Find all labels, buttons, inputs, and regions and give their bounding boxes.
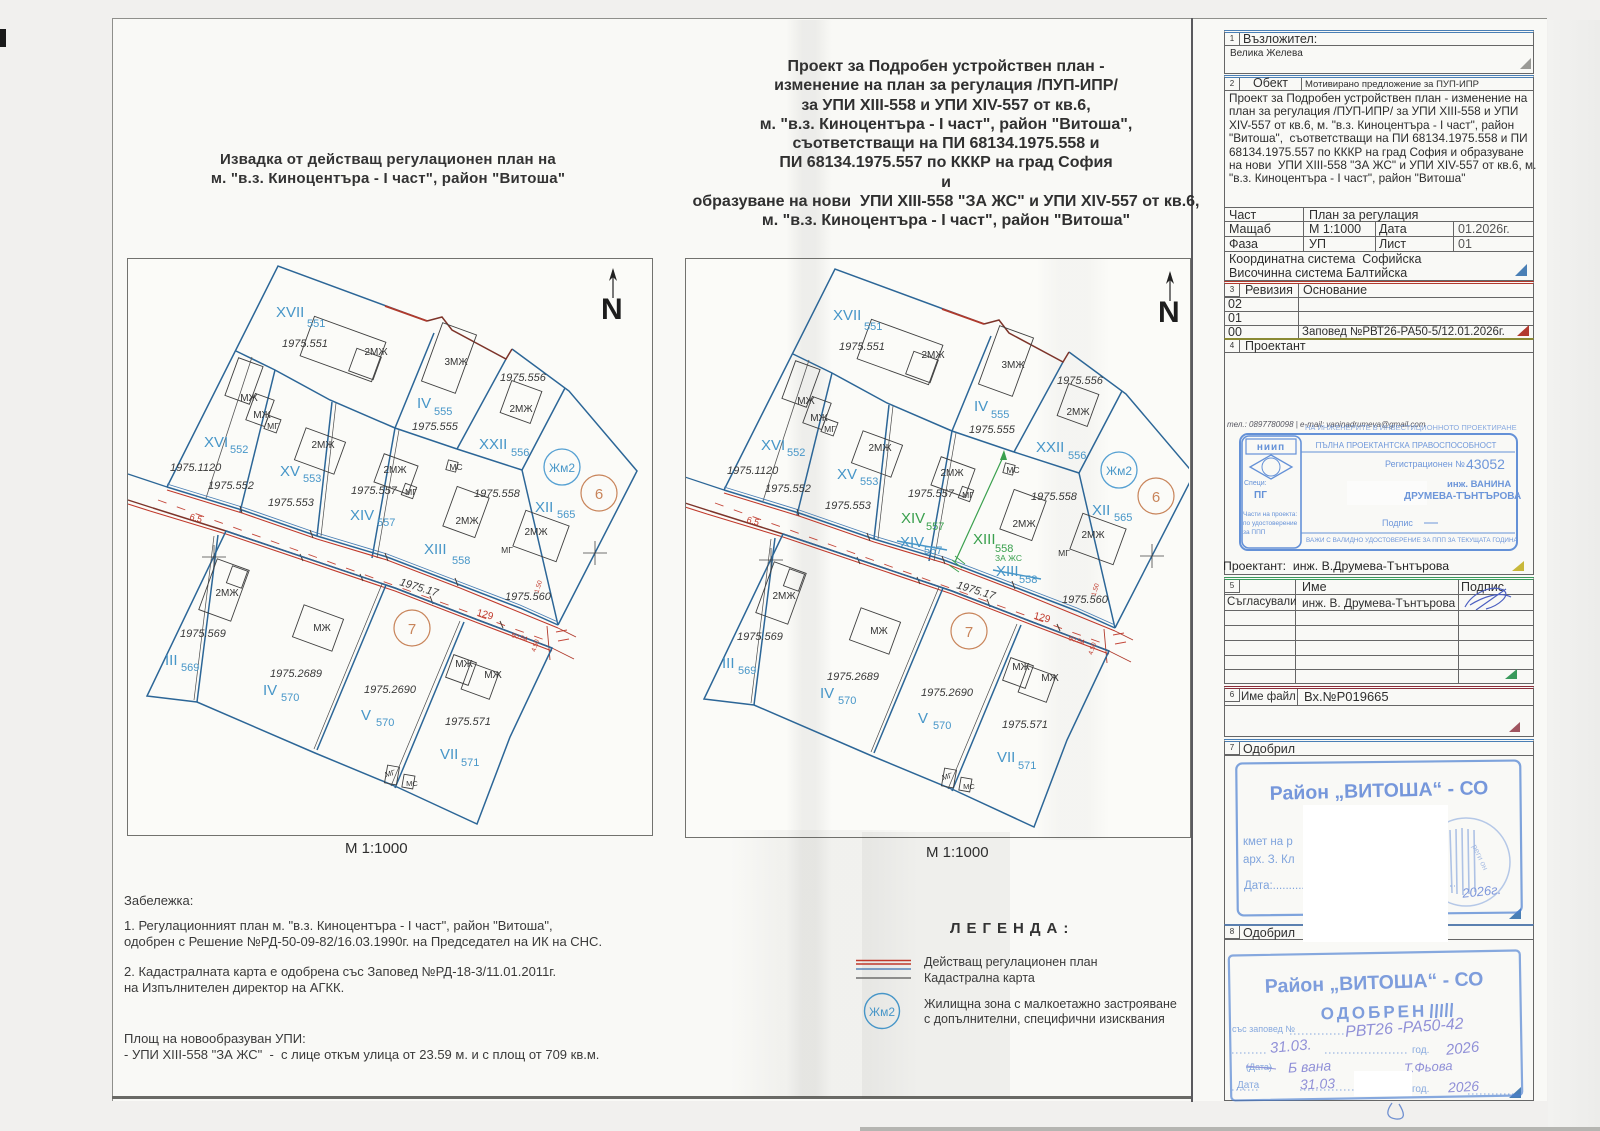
svg-text:за ППП: за ППП (1243, 529, 1266, 536)
svg-text:инж. ВАНИНА: инж. ВАНИНА (1447, 479, 1511, 490)
svg-text:XIII: XIII (973, 531, 996, 548)
svg-text:кмет на р: кмет на р (1243, 836, 1293, 848)
svg-text:Части на проекта:: Части на проекта: (1243, 511, 1297, 518)
svg-text:ВАЖИ С ВАЛИДНО УДОСТОВЕРЕНИЕ З: ВАЖИ С ВАЛИДНО УДОСТОВЕРЕНИЕ ЗА ППП ЗА Т… (1306, 537, 1518, 544)
svg-text:2026: 2026 (1447, 1078, 1480, 1096)
svg-text:реги он: реги он (1470, 843, 1490, 872)
svg-text:по удостоверение: по удостоверение (1243, 520, 1298, 527)
svg-text:ниип: ниип (1257, 442, 1285, 453)
svg-text:557: 557 (377, 517, 395, 529)
svg-text:2026г.: 2026г. (1461, 882, 1502, 901)
svg-text:Регистрационен №: Регистрационен № (1385, 459, 1465, 469)
svg-text:XIII: XIII (424, 541, 447, 558)
svg-text:със заповед №: със заповед № (1232, 1024, 1295, 1034)
svg-text:Дата: Дата (1237, 1080, 1260, 1091)
svg-text:ЗА ЖС: ЗА ЖС (995, 553, 1022, 563)
svg-text:Б вана: Б вана (1288, 1057, 1332, 1075)
svg-text:Район „ВИТОША“ - СО: Район „ВИТОША“ - СО (1269, 777, 1488, 805)
svg-text:год.: год. (1412, 1045, 1429, 1056)
svg-text:557: 557 (926, 521, 944, 533)
svg-text:год.: год. (1412, 1084, 1429, 1095)
svg-text:ПГ: ПГ (1254, 490, 1267, 501)
svg-text:43052: 43052 (1466, 456, 1505, 472)
svg-text:арх. З. Кл: арх. З. Кл (1243, 854, 1295, 866)
svg-text:2026: 2026 (1444, 1038, 1481, 1059)
svg-text:558: 558 (452, 555, 470, 567)
svg-text:31.03: 31.03 (1300, 1075, 1336, 1092)
svg-text:НА ИНЖЕНЕРИТЕ В ИНВЕСТИЦИОННОТ: НА ИНЖЕНЕРИТЕ В ИНВЕСТИЦИОННОТО ПРОЕКТИР… (1305, 423, 1517, 432)
svg-text:ПЪЛНА ПРОЕКТАНТСКА ПРАВОСПОСОБ: ПЪЛНА ПРОЕКТАНТСКА ПРАВОСПОСОБНОСТ (1316, 441, 1497, 450)
svg-text:Подпис: Подпис (1382, 518, 1413, 528)
svg-text:XIV: XIV (901, 510, 925, 527)
svg-text:Район „ВИТОША“ - СО: Район „ВИТОША“ - СО (1264, 968, 1483, 998)
svg-text:ДРУМЕВА-ТЪНТЪРОВА: ДРУМЕВА-ТЪНТЪРОВА (1404, 491, 1521, 502)
svg-text:Специ:: Специ: (1244, 480, 1267, 487)
svg-text:XIV: XIV (350, 507, 374, 524)
svg-text:Дата:............: Дата:............ (1244, 880, 1311, 892)
svg-text:Жм2: Жм2 (869, 1005, 895, 1019)
svg-text:31.03.: 31.03. (1269, 1036, 1312, 1057)
